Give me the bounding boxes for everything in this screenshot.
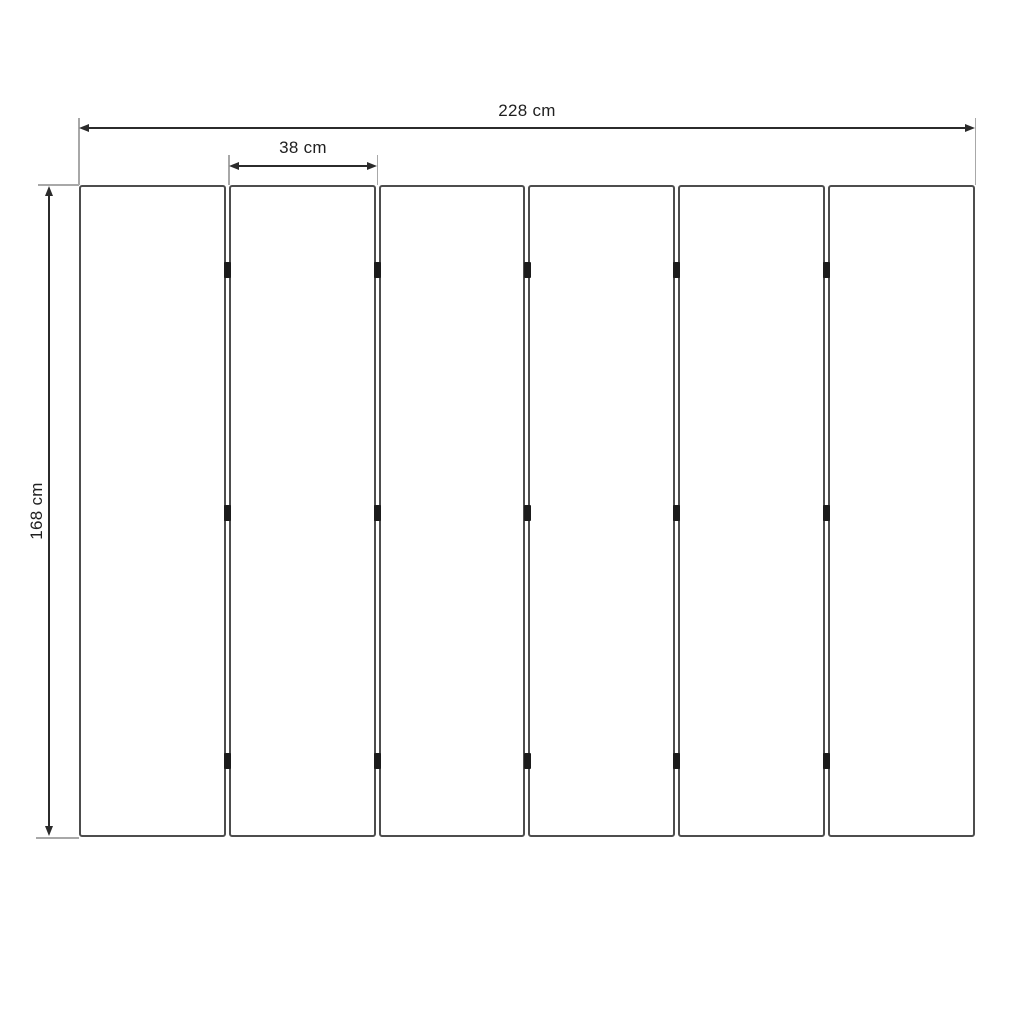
- panel-5: [678, 185, 825, 837]
- hinge: [374, 262, 381, 278]
- hinge: [673, 505, 680, 521]
- hinge: [673, 753, 680, 769]
- hinge: [224, 262, 231, 278]
- total-width-label: 228 cm: [79, 101, 975, 121]
- arrow-right-icon: [367, 162, 377, 170]
- hinge: [823, 262, 830, 278]
- arrow-right-icon: [965, 124, 975, 132]
- hinge: [823, 753, 830, 769]
- hinge: [224, 753, 231, 769]
- hinge: [524, 753, 531, 769]
- panel-width-dimension-line: [232, 165, 374, 167]
- panel-1: [79, 185, 226, 837]
- arrow-down-icon: [45, 826, 53, 836]
- height-dimension-line: [48, 190, 50, 832]
- total-width-dimension-line: [82, 127, 972, 129]
- panel-width-label: 38 cm: [229, 138, 377, 158]
- arrow-left-icon: [229, 162, 239, 170]
- extension-line-panel-left: [228, 155, 230, 185]
- height-label: 168 cm: [27, 482, 47, 540]
- dimension-diagram: 228 cm 38 cm 168 cm: [0, 0, 1024, 1024]
- hinge: [524, 505, 531, 521]
- arrow-up-icon: [45, 186, 53, 196]
- hinge: [224, 505, 231, 521]
- panel-3: [379, 185, 526, 837]
- hinge: [374, 505, 381, 521]
- panel-2: [229, 185, 376, 837]
- extension-line-height-bottom: [36, 837, 79, 839]
- extension-line-panel-right: [377, 155, 379, 185]
- panel-6: [828, 185, 975, 837]
- hinge: [823, 505, 830, 521]
- arrow-left-icon: [79, 124, 89, 132]
- hinge: [524, 262, 531, 278]
- hinge: [374, 753, 381, 769]
- hinge: [673, 262, 680, 278]
- panel-4: [528, 185, 675, 837]
